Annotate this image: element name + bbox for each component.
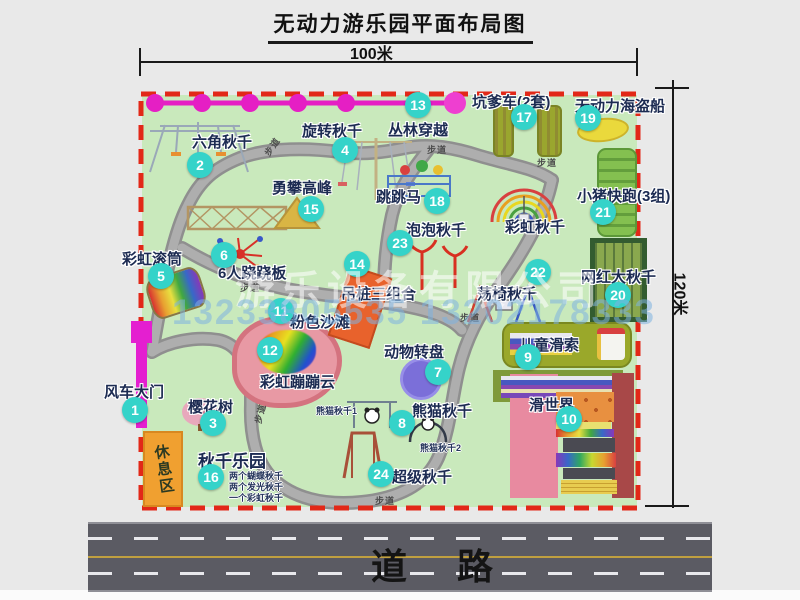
badge-3: 3: [200, 410, 226, 436]
windmill-gate-icon: [131, 321, 152, 343]
label-bounce-cloud: 彩虹蹦蹦云: [260, 371, 335, 392]
park-plan-screenshot: 无动力游乐园平面布局图 100米 120米: [0, 0, 800, 600]
label-pit-car: 坑爹车(2套): [472, 91, 550, 112]
rest-area-label: 休息区: [149, 442, 177, 495]
path-label-7: 步道: [375, 494, 395, 507]
slide-world-area: [493, 368, 635, 503]
dim-height-tick-bottom: [645, 505, 689, 507]
label-piggy-run: 小猪快跑(3组): [577, 185, 670, 206]
badge-12: 12: [257, 337, 283, 363]
slide-world-dark-block-1: [563, 438, 615, 452]
label-swing-park-note-3: 一个彩虹秋千: [229, 491, 283, 504]
label-climb-peak: 勇攀高峰: [272, 177, 332, 198]
label-rainbow-swing: 彩虹秋千: [505, 216, 565, 237]
badge-6: 6: [211, 242, 237, 268]
badge-1: 1: [122, 397, 148, 423]
badge-2: 2: [187, 152, 213, 178]
title-bar: 无动力游乐园平面布局图: [0, 8, 800, 44]
badge-24: 24: [368, 461, 394, 487]
label-panda-swing-1: 熊猫秋千1: [316, 404, 357, 417]
slide-world-wavy-slide: [561, 480, 617, 494]
badge-19: 19: [575, 105, 601, 131]
dim-width-tick-left: [139, 48, 141, 76]
badge-9: 9: [515, 344, 541, 370]
badge-8: 8: [389, 410, 415, 436]
badge-17: 17: [511, 104, 537, 130]
road: 道路: [88, 522, 712, 592]
dim-width-tick-right: [636, 48, 638, 76]
pit-car-track-2: [537, 105, 562, 157]
badge-5: 5: [148, 263, 174, 289]
dim-height-tick-top: [655, 87, 689, 89]
badge-13: 13: [405, 92, 431, 118]
road-label: 道路: [371, 538, 543, 590]
label-jump-horse: 跳跳马: [376, 186, 421, 207]
label-panda-swing-2: 熊猫秋千2: [420, 441, 461, 454]
label-bubble-swing: 泡泡秋千: [406, 219, 466, 240]
rest-area: 休息区: [143, 431, 183, 507]
path-label-2: 步道: [427, 143, 447, 156]
dim-height-label: 120米: [669, 273, 693, 316]
label-rotating-swing: 旋转秋千: [302, 120, 362, 141]
path-label-3: 步道: [537, 156, 557, 169]
badge-18: 18: [424, 188, 450, 214]
badge-10: 10: [556, 406, 582, 432]
badge-15: 15: [298, 196, 324, 222]
label-panda-swing: 熊猫秋千: [412, 400, 472, 421]
badge-4: 4: [332, 137, 358, 163]
page-title: 无动力游乐园平面布局图: [268, 8, 533, 44]
badge-21: 21: [590, 199, 616, 225]
slide-world-rainbow-strip-2: [556, 453, 616, 467]
badge-7: 7: [425, 359, 451, 385]
slide-world-dark-block-2: [563, 468, 615, 479]
badge-23: 23: [387, 230, 413, 256]
label-jungle-crossing: 丛林穿越: [388, 119, 448, 140]
badge-16: 16: [198, 464, 224, 490]
label-super-swing: 超级秋千: [392, 466, 452, 487]
label-hexagon-swing: 六角秋千: [192, 131, 252, 152]
watermark-phone: 13233805535 13202178333: [172, 293, 656, 333]
